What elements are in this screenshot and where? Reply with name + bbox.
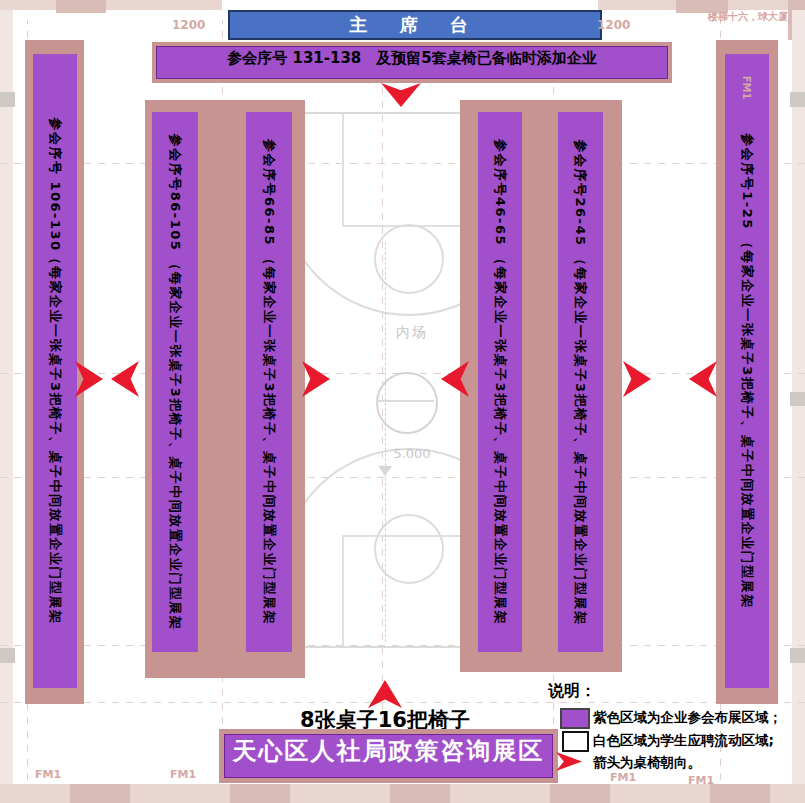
legend-purple-swatch	[560, 708, 590, 729]
cad-fm-label: FM1	[688, 774, 714, 787]
cad-dim-label: 1200	[597, 18, 630, 32]
cad-bottom-block	[550, 784, 610, 803]
booth-label-46-65: 参会序号46-65 （每家企业一张桌子3把椅子、桌子中间放置企业门型展架	[478, 117, 522, 647]
cad-corner-label: 楼梯十六，球大厦	[708, 10, 788, 24]
event-floor-plan: 内场 5.000 参会序号 106-130（每家企业一张桌子3把椅子、桌子中间放…	[0, 0, 805, 803]
court-centerline	[385, 242, 386, 642]
cad-top-left-band	[0, 0, 222, 10]
booth-label-26-45: 参会序号26-45 （每家企业一张桌子3把椅子、桌子中间放置企业门型展架	[558, 118, 603, 648]
reserved-seats-banner: 参会序号 131-138 及预留5套桌椅已备临时添加企业	[152, 42, 672, 83]
legend-item-white: 白色区域为学生应聘流动区域;	[593, 732, 774, 750]
cad-bottom-block	[70, 784, 130, 803]
legend-item-arrow: 箭头为桌椅朝向。	[593, 754, 701, 772]
booth-label-86-105: 参会序号86-105 （每家企业一张桌子3把椅子、桌子中间放置企业门型展架	[152, 117, 198, 647]
dimension-tick-icon	[378, 466, 392, 476]
cad-edge-mark	[790, 92, 805, 107]
cad-edge-mark	[790, 648, 805, 663]
cad-bottom-block	[710, 784, 770, 803]
booth-label-1-25: 参会序号1-25 （每家企业一张桌子3把椅子、桌子中间放置企业门型展架	[725, 56, 769, 686]
cad-edge-mark	[790, 392, 805, 406]
arrow-up-icon	[368, 680, 402, 708]
legend-arrow-icon	[556, 752, 582, 771]
cad-top-left-block	[56, 0, 106, 13]
cad-fm-label: FM1	[610, 771, 636, 784]
cad-fm-label: FM1	[170, 768, 196, 781]
cad-fm-label: FM1	[741, 76, 752, 100]
arrow-right-icon	[623, 361, 651, 397]
arrow-left-icon	[689, 361, 717, 397]
cad-dim-label: 1200	[172, 18, 205, 32]
arrow-down-icon	[381, 83, 421, 107]
key-box-top	[342, 112, 476, 227]
court-dimension-label: 5.000	[380, 446, 444, 461]
policy-consult-banner: 天心区人社局政策咨询展区	[219, 729, 558, 783]
cad-edge-mark	[0, 92, 15, 107]
booth-label-106-130: 参会序号 106-130（每家企业一张桌子3把椅子、桌子中间放置企业门型展架	[33, 56, 77, 686]
legend-item-purple: 紫色区域为企业参会布展区域；	[593, 709, 782, 727]
court-inner-label: 内场	[380, 324, 444, 342]
cad-bottom-block	[230, 784, 290, 803]
arrow-left-icon	[111, 361, 139, 397]
legend-white-swatch	[562, 731, 589, 752]
cad-left-strip	[0, 10, 13, 784]
cad-fm-label: FM1	[35, 768, 61, 781]
cad-bottom-block	[390, 784, 450, 803]
booth-label-66-85: 参会序号66-85 （每家企业一张桌子3把椅子、桌子中间放置企业门型展架	[246, 117, 292, 647]
stage-banner: 主 席 台	[228, 10, 602, 40]
cad-gridline	[0, 702, 805, 703]
cad-edge-mark	[0, 648, 15, 663]
legend-title: 说明：	[548, 681, 596, 702]
